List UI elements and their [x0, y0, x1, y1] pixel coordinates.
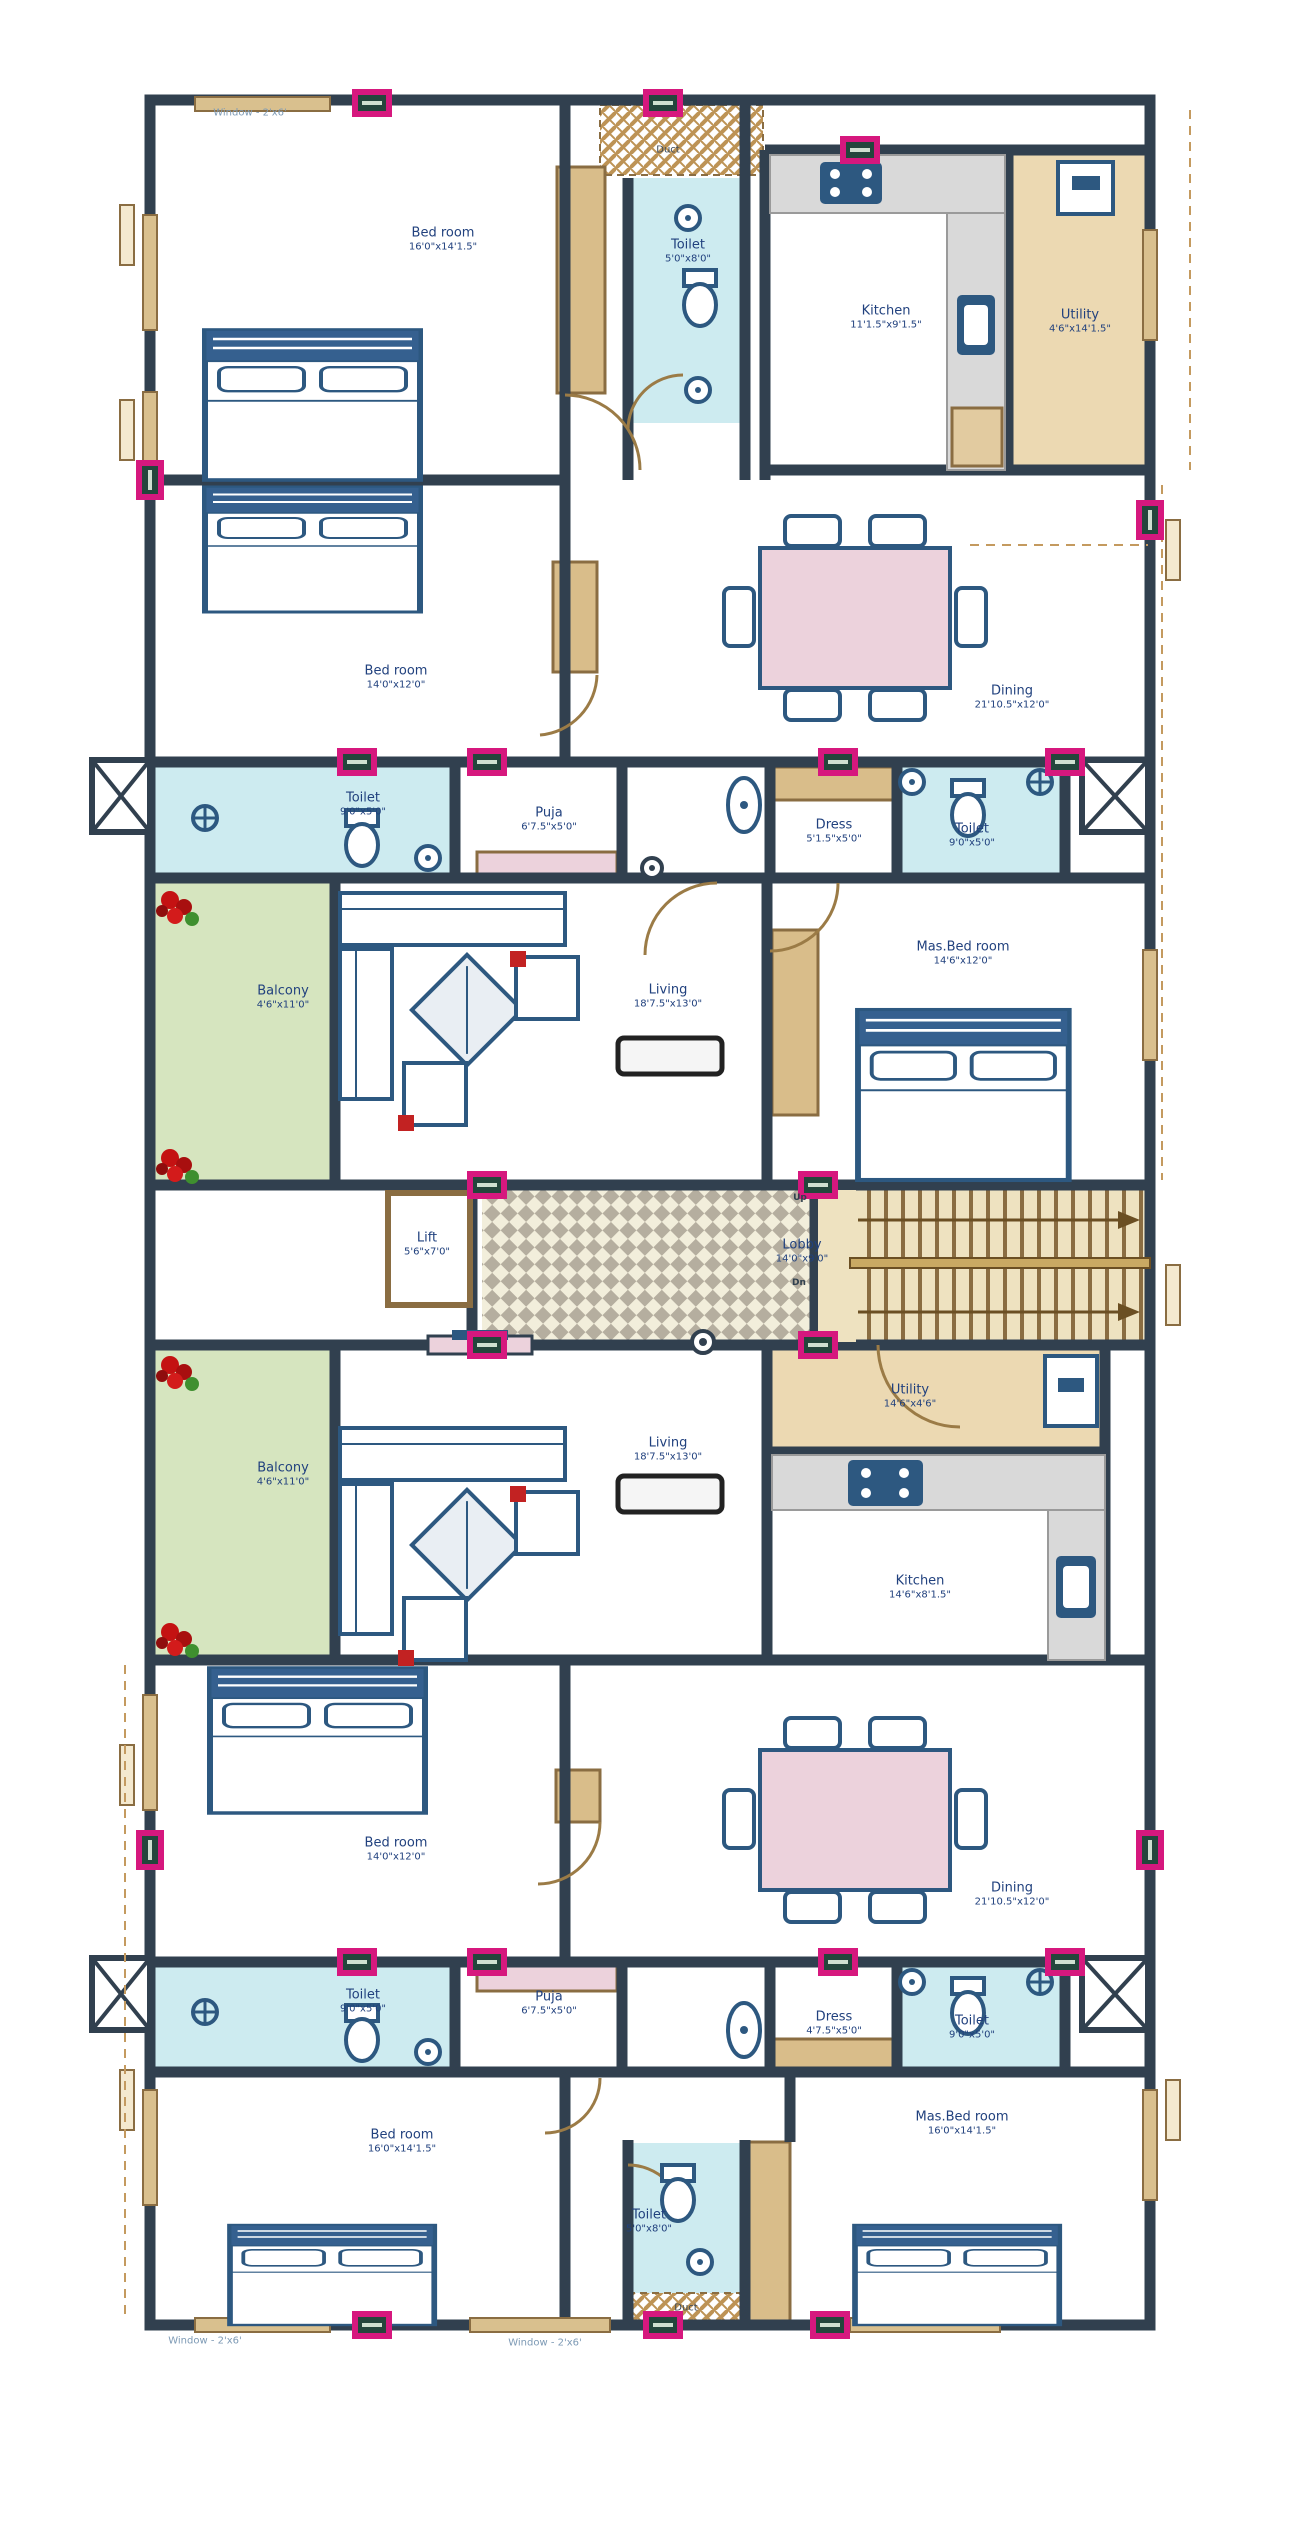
room-name: Dining — [991, 1881, 1033, 1897]
room-label-living-bottom: Living 18'7.5"x13'0" — [634, 1436, 702, 1465]
window-left-2 — [143, 392, 157, 468]
window-label-bottom-left: Window - 2'x6' — [168, 2336, 242, 2347]
window-right-2 — [1143, 950, 1157, 1060]
room-label-utility-bottom: Utility 14'6"x4'6" — [884, 1383, 936, 1412]
bed-bedroom1-top — [205, 330, 420, 480]
dimension-marker — [120, 400, 134, 460]
window-bottom-2 — [470, 2318, 610, 2332]
room-label-toilet-left-top: Toilet 9'0"x5'0" — [340, 791, 386, 820]
room-name: Bed room — [365, 664, 428, 680]
stairs-down-label: Dn — [792, 1278, 806, 1288]
duct-box-right-top — [1082, 760, 1148, 832]
room-label-puja-bottom: Puja 6'7.5"x5'0" — [521, 1990, 577, 2019]
room-name: Mas.Bed room — [915, 2110, 1008, 2126]
window-left-3 — [143, 1695, 157, 1810]
room-label-balcony-top: Balcony 4'6"x11'0" — [257, 984, 309, 1013]
window-left-1 — [143, 215, 157, 330]
room-name: Living — [649, 983, 688, 999]
room-name: Dress — [816, 2010, 853, 2026]
room-dims: 14'6"x8'1.5" — [889, 1590, 951, 1603]
room-dims: 5'6"x7'0" — [404, 1247, 450, 1260]
bed-master-bottom — [855, 2225, 1059, 2325]
room-label-master-top: Mas.Bed room 14'6"x12'0" — [916, 940, 1009, 969]
room-label-lobby: Lobby 14'0"x9'0" — [776, 1238, 828, 1267]
room-name: Bed room — [371, 2128, 434, 2144]
wardrobe-master-bottom — [747, 2142, 790, 2325]
window-left-4 — [143, 2090, 157, 2205]
room-dims: 4'6"x14'1.5" — [1049, 324, 1111, 337]
tv-unit-bottom — [618, 1476, 722, 1512]
dimension-marker — [1166, 1265, 1180, 1325]
room-label-master-bottom: Mas.Bed room 16'0"x14'1.5" — [915, 2110, 1008, 2139]
room-name: Toilet — [955, 822, 989, 838]
room-label-puja-top: Puja 6'7.5"x5'0" — [521, 806, 577, 835]
floor-plan-drawing — [0, 0, 1300, 2533]
duct-box-right-bottom — [1082, 1958, 1148, 2030]
duct-box-left-top — [92, 760, 150, 832]
dimension-marker — [1166, 520, 1180, 580]
room-label-bedroom1-top: Bed room 16'0"x14'1.5" — [409, 226, 477, 255]
room-dims: 16'0"x14'1.5" — [368, 2144, 436, 2157]
balcony-top-fill — [155, 883, 335, 1185]
room-dims: 6'7.5"x5'0" — [521, 822, 577, 835]
bed-bedroom2-bottom — [230, 2225, 434, 2325]
room-name: Utility — [1061, 308, 1099, 324]
room-dims: 14'0"x12'0" — [367, 1852, 426, 1865]
room-dims: 6'7.5"x5'0" — [521, 2006, 577, 2019]
room-name: Puja — [535, 1990, 562, 2006]
room-dims: 5'0"x8'0" — [626, 2224, 672, 2237]
room-label-living-top: Living 18'7.5"x13'0" — [634, 983, 702, 1012]
floor-plan: Window - 2'x6' Bed room 16'0"x14'1.5" Du… — [0, 0, 1300, 2533]
room-name: Bed room — [412, 226, 475, 242]
room-dims: 11'1.5"x9'1.5" — [850, 320, 922, 333]
room-name: Dining — [991, 684, 1033, 700]
bed-master-top — [858, 1010, 1069, 1180]
room-name: Kitchen — [896, 1574, 945, 1590]
room-name: Living — [649, 1436, 688, 1452]
room-dims: 16'0"x14'1.5" — [928, 2126, 996, 2139]
room-dims: 14'0"x9'0" — [776, 1254, 828, 1267]
room-label-dining-bottom: Dining 21'10.5"x12'0" — [975, 1881, 1050, 1910]
room-dims: 18'7.5"x13'0" — [634, 1452, 702, 1465]
duct-label-bottom: Duct — [674, 2303, 697, 2314]
dimension-marker — [120, 205, 134, 265]
room-label-toilet-right-top: Toilet 9'0"x5'0" — [949, 822, 995, 851]
dining-set-bottom — [724, 1718, 986, 1922]
stairs-up-label: Up — [793, 1193, 807, 1203]
window-label-bottom-right: Window - 2'x6' — [508, 2338, 582, 2349]
lobby-floor — [482, 1190, 812, 1342]
room-name: Balcony — [257, 984, 309, 1000]
room-label-dress-bottom: Dress 4'7.5"x5'0" — [806, 2010, 862, 2039]
room-label-lift: Lift 5'6"x7'0" — [404, 1231, 450, 1260]
room-dims: 9'0"x5'0" — [949, 2030, 995, 2043]
wardrobe-master-top — [772, 930, 818, 1115]
room-dims: 21'10.5"x12'0" — [975, 1897, 1050, 1910]
window-label-top: Window - 2'x6' — [213, 108, 287, 119]
room-name: Puja — [535, 806, 562, 822]
room-name: Lobby — [782, 1238, 821, 1254]
stove-bottom — [848, 1460, 923, 1506]
dimension-marker — [1166, 2080, 1180, 2140]
room-label-bedroom1-bottom: Bed room 14'0"x12'0" — [365, 1836, 428, 1865]
room-label-toilet-attached-bottom: Toilet 5'0"x8'0" — [626, 2208, 672, 2237]
balcony-bottom-fill — [155, 1350, 335, 1660]
room-dims: 14'6"x4'6" — [884, 1399, 936, 1412]
room-name: Bed room — [365, 1836, 428, 1852]
room-name: Toilet — [346, 1988, 380, 2004]
room-name: Lift — [417, 1231, 437, 1247]
dimension-marker — [120, 1745, 134, 1805]
room-dims: 4'7.5"x5'0" — [806, 2026, 862, 2039]
room-dims: 9'0"x5'0" — [949, 838, 995, 851]
room-name: Kitchen — [862, 304, 911, 320]
room-label-bedroom2-top: Bed room 14'0"x12'0" — [365, 664, 428, 693]
window-right-3 — [1143, 2090, 1157, 2200]
window-right-1 — [1143, 230, 1157, 340]
room-name: Toilet — [955, 2014, 989, 2030]
room-dims: 5'1.5"x5'0" — [806, 834, 862, 847]
room-name: Mas.Bed room — [916, 940, 1009, 956]
room-label-dress-top: Dress 5'1.5"x5'0" — [806, 818, 862, 847]
room-dims: 4'6"x11'0" — [257, 1000, 309, 1013]
room-label-toilet-attached-top: Toilet 5'0"x8'0" — [665, 238, 711, 267]
tv-unit-top — [618, 1038, 722, 1074]
room-label-balcony-bottom: Balcony 4'6"x11'0" — [257, 1461, 309, 1490]
room-dims: 14'6"x12'0" — [934, 956, 993, 969]
room-dims: 9'0"x5'0" — [340, 807, 386, 820]
room-name: Toilet — [671, 238, 705, 254]
bed-bedroom1-bottom — [210, 1668, 425, 1813]
dimension-marker — [120, 2070, 134, 2130]
room-dims: 21'10.5"x12'0" — [975, 700, 1050, 713]
room-label-kitchen-bottom: Kitchen 14'6"x8'1.5" — [889, 1574, 951, 1603]
room-dims: 9'0"x5'0" — [340, 2004, 386, 2017]
bed-bedroom2-top — [205, 487, 420, 612]
room-label-kitchen-top: Kitchen 11'1.5"x9'1.5" — [850, 304, 922, 333]
room-label-utility-top: Utility 4'6"x14'1.5" — [1049, 308, 1111, 337]
room-label-bedroom2-bottom: Bed room 16'0"x14'1.5" — [368, 2128, 436, 2157]
room-dims: 5'0"x8'0" — [665, 254, 711, 267]
stove-top — [820, 162, 882, 204]
room-label-dining-top: Dining 21'10.5"x12'0" — [975, 684, 1050, 713]
room-dims: 4'6"x11'0" — [257, 1477, 309, 1490]
fridge-top — [952, 408, 1002, 466]
dining-set-top — [724, 516, 986, 720]
duct-label-top: Duct — [656, 145, 679, 156]
room-name: Dress — [816, 818, 853, 834]
room-label-toilet-left-bottom: Toilet 9'0"x5'0" — [340, 1988, 386, 2017]
room-dims: 14'0"x12'0" — [367, 680, 426, 693]
room-dims: 18'7.5"x13'0" — [634, 999, 702, 1012]
duct-box-left-bottom — [92, 1958, 150, 2030]
room-name: Utility — [891, 1383, 929, 1399]
room-dims: 16'0"x14'1.5" — [409, 242, 477, 255]
room-name: Toilet — [632, 2208, 666, 2224]
room-label-toilet-right-bottom: Toilet 9'0"x5'0" — [949, 2014, 995, 2043]
room-name: Balcony — [257, 1461, 309, 1477]
room-name: Toilet — [346, 791, 380, 807]
